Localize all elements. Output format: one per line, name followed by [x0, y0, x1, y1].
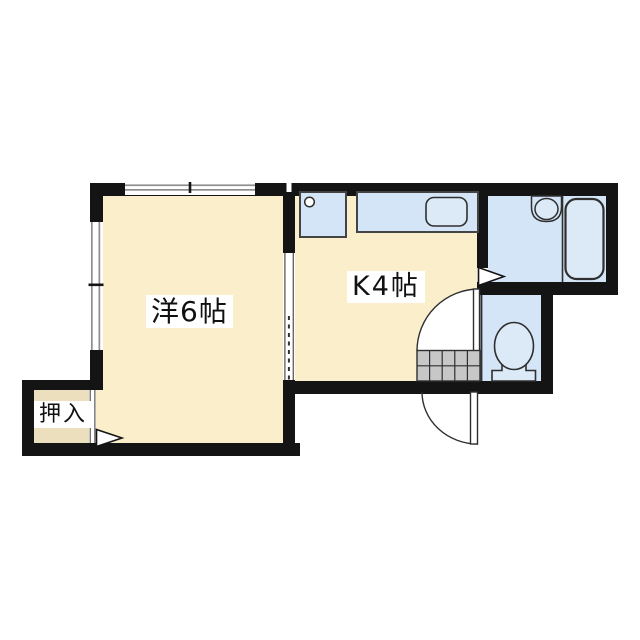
kitchen-sink-icon	[426, 198, 467, 227]
bathtub-icon	[566, 199, 604, 279]
wall-bottom-main	[22, 443, 300, 456]
closet-door-line	[94, 390, 95, 443]
entrance-door-leaf-icon	[471, 392, 478, 444]
floor-plan: 洋6帖 K4帖 押入	[0, 0, 640, 640]
floor-plan-canvas	[0, 0, 640, 640]
room-label-kitchen: K4帖	[347, 271, 425, 303]
wash-basin-icon	[535, 199, 558, 220]
wall-kitchen-bottom	[283, 381, 553, 394]
entrance-door-swing-icon	[422, 392, 478, 444]
doorway-frame-line	[293, 253, 294, 380]
toilet-icon	[495, 323, 534, 370]
wall-seam	[287, 183, 292, 192]
faucet-icon	[305, 197, 315, 207]
wall-bath-right	[606, 183, 618, 295]
doorway-frame-line	[284, 253, 285, 380]
toilet-fixtures	[492, 323, 536, 382]
room-label-western: 洋6帖	[146, 295, 233, 328]
window-left-tick	[89, 284, 104, 287]
room-label-closet: 押入	[34, 401, 92, 428]
wall-closet-top	[22, 380, 103, 390]
toilet-door-leaf-icon	[474, 289, 480, 351]
window-top-tick	[189, 182, 192, 193]
kitchen-fixtures	[300, 192, 478, 237]
wall-toilet-right	[541, 282, 553, 394]
